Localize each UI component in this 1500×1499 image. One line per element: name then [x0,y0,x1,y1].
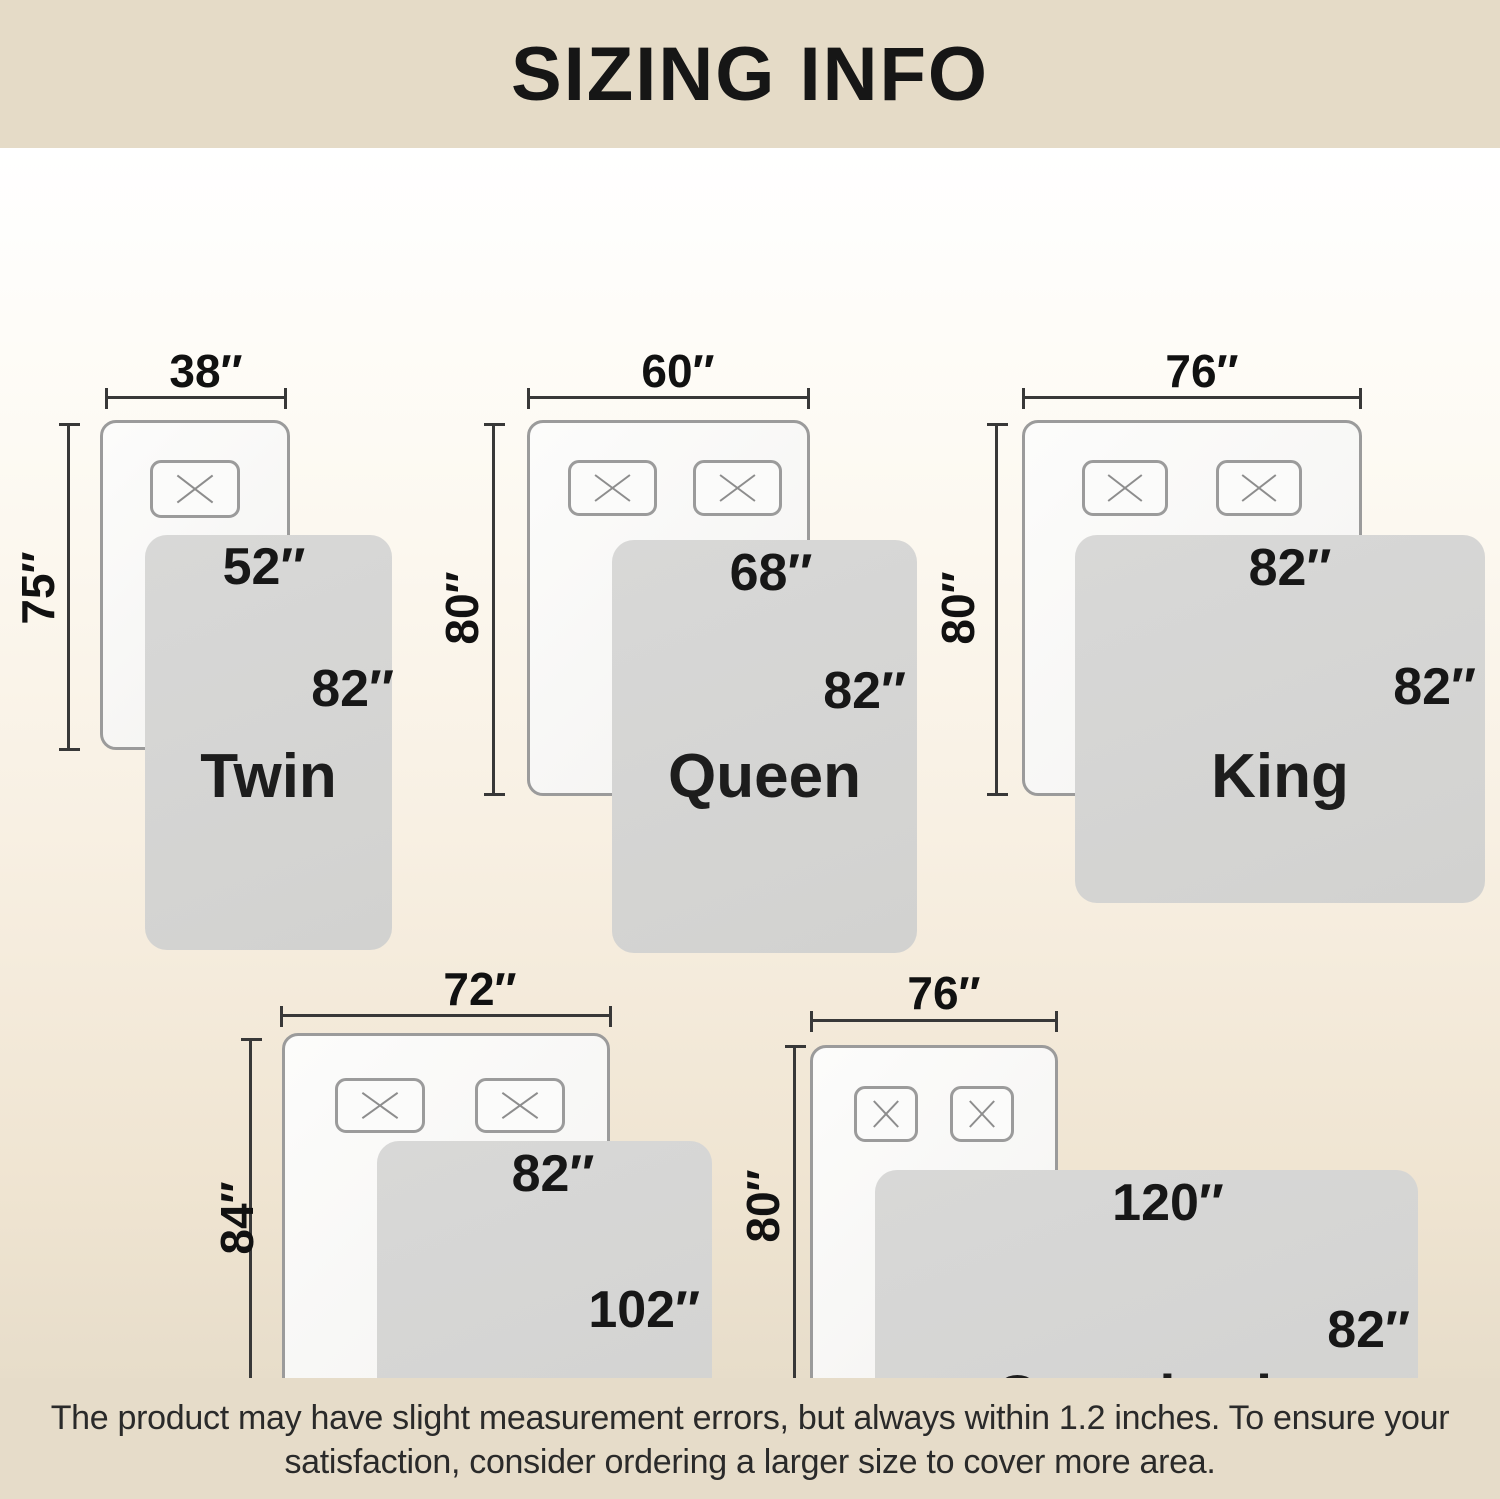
blanket-length-label: 82″ [1270,1303,1410,1357]
pillow-icon [335,1078,425,1133]
mattress-width-label: 38″ [136,346,276,396]
mattress-height-label: 80″ [437,558,487,658]
height-dimension-line [67,423,70,751]
size-name: Twin [145,745,392,809]
blanket-width-label: 68″ [701,546,841,600]
pillow-icon [475,1078,565,1133]
header-band: SIZING INFO [0,0,1500,148]
pillow-x-icon [478,1081,562,1130]
mattress-height-label: 80″ [738,1156,788,1256]
mattress-height-label: 75″ [13,538,63,638]
page-title: SIZING INFO [511,31,989,118]
pillow-icon [1082,460,1168,516]
pillow-icon [568,460,657,516]
pillow-icon [693,460,782,516]
blanket-width-label: 82″ [483,1147,623,1201]
diagram-area: 38″ 75″ 52″ 82″ Twin 60″ 80″ [0,148,1500,1378]
height-dimension-line [793,1045,796,1405]
mattress-width-label: 72″ [410,964,550,1014]
mattress-height-label: 84″ [212,1168,262,1268]
blanket-length-label: 82″ [254,662,394,716]
pillow-icon [950,1086,1014,1142]
blanket-length-label: 82″ [1336,660,1476,714]
sizing-infographic: SIZING INFO 38″ 75″ 52″ 82″ Twin 60″ 80″ [0,0,1500,1499]
pillow-x-icon [1219,463,1299,513]
mattress-width-label: 76″ [874,968,1014,1018]
blanket-width-label: 82″ [1220,541,1360,595]
height-dimension-line [492,423,495,796]
blanket-length-label: 102″ [560,1283,700,1337]
size-name: Queen [612,745,917,809]
blanket-length-label: 82″ [766,664,906,718]
width-dimension-line [810,1019,1058,1022]
blanket-width-label: 120″ [1098,1176,1238,1230]
pillow-x-icon [1085,463,1165,513]
height-dimension-line [995,423,998,796]
pillow-x-icon [857,1089,915,1139]
pillow-x-icon [338,1081,422,1130]
pillow-icon [1216,460,1302,516]
mattress-width-label: 76″ [1132,346,1272,396]
pillow-icon [854,1086,918,1142]
mattress-width-label: 60″ [608,346,748,396]
pillow-x-icon [953,1089,1011,1139]
pillow-x-icon [153,463,237,515]
footer-band: The product may have slight measurement … [0,1378,1500,1499]
pillow-x-icon [571,463,654,513]
pillow-x-icon [696,463,779,513]
blanket-width-label: 52″ [194,540,334,594]
pillow-icon [150,460,240,518]
mattress-height-label: 80″ [933,558,983,658]
disclaimer-line-2: satisfaction, consider ordering a larger… [284,1440,1215,1484]
disclaimer-line-1: The product may have slight measurement … [51,1396,1450,1440]
size-name: King [1075,745,1485,809]
